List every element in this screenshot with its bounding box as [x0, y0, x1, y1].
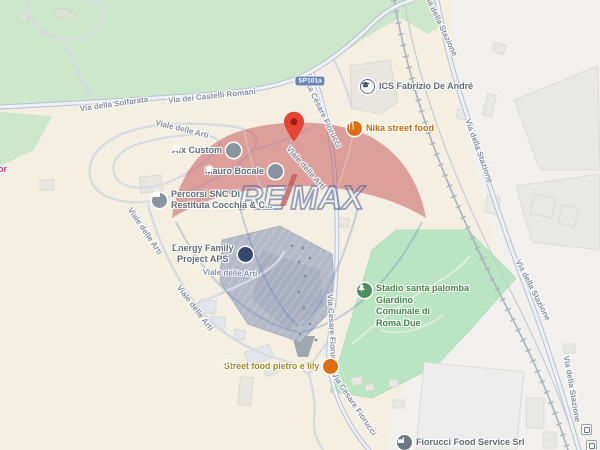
poi-label: Fiorucci Food Service Srl [416, 437, 525, 448]
poi-label: Nika street food [366, 123, 434, 134]
business-icon[interactable] [268, 164, 283, 179]
restaurant-icon[interactable] [347, 121, 362, 136]
poi-label: Energy Family Project APS [172, 243, 234, 265]
poi-ics-fabrizio-de-andre[interactable]: ICS Fabrizio De André [360, 79, 473, 94]
poi-label: Street food pietro e lily [224, 361, 319, 372]
school-icon[interactable] [360, 79, 375, 94]
map-canvas[interactable]: RE/MAX Via della Solfarata Via dei Caste… [0, 0, 600, 450]
park-icon[interactable] [357, 283, 372, 298]
train-station-icon[interactable] [586, 440, 597, 450]
community-icon[interactable] [238, 247, 253, 262]
poi-alx-custom[interactable]: Alx Custom [172, 143, 241, 158]
road-label-viale-arti-4: Viale delle Arti [203, 268, 258, 279]
poi-partial-label[interactable]: or [0, 164, 7, 175]
poi-label: ICS Fabrizio De André [379, 81, 473, 92]
business-icon[interactable] [226, 143, 241, 158]
business-icon[interactable] [152, 193, 167, 208]
location-pin[interactable] [283, 112, 305, 142]
restaurant-icon[interactable] [323, 359, 338, 374]
poi-street-food-pietro-e-lily[interactable]: Street food pietro e lily [224, 359, 338, 374]
poi-label: or [0, 164, 7, 175]
route-badge-sp101a: SP101a [295, 77, 324, 86]
poi-label: Percorsi SNC Di Restituta Cocchia & C... [171, 189, 273, 211]
poi-stadio-santa-palomba[interactable]: Stadio santa palomba Giardino Comunale d… [357, 283, 469, 329]
poi-fiorucci-food-service[interactable]: Fiorucci Food Service Srl [397, 435, 525, 450]
map-base-layer [0, 0, 600, 450]
poi-percorsi-snc[interactable]: Percorsi SNC Di Restituta Cocchia & C... [152, 189, 273, 211]
poi-label: Stadio santa palomba Giardino Comunale d… [376, 283, 469, 329]
train-station-icon[interactable] [581, 424, 592, 435]
poi-mauro-bocale[interactable]: Mauro Bocale [205, 164, 283, 179]
factory-icon[interactable] [397, 435, 412, 450]
poi-nika-street-food[interactable]: Nika street food [347, 121, 434, 136]
poi-energy-family[interactable]: Energy Family Project APS [172, 243, 253, 265]
